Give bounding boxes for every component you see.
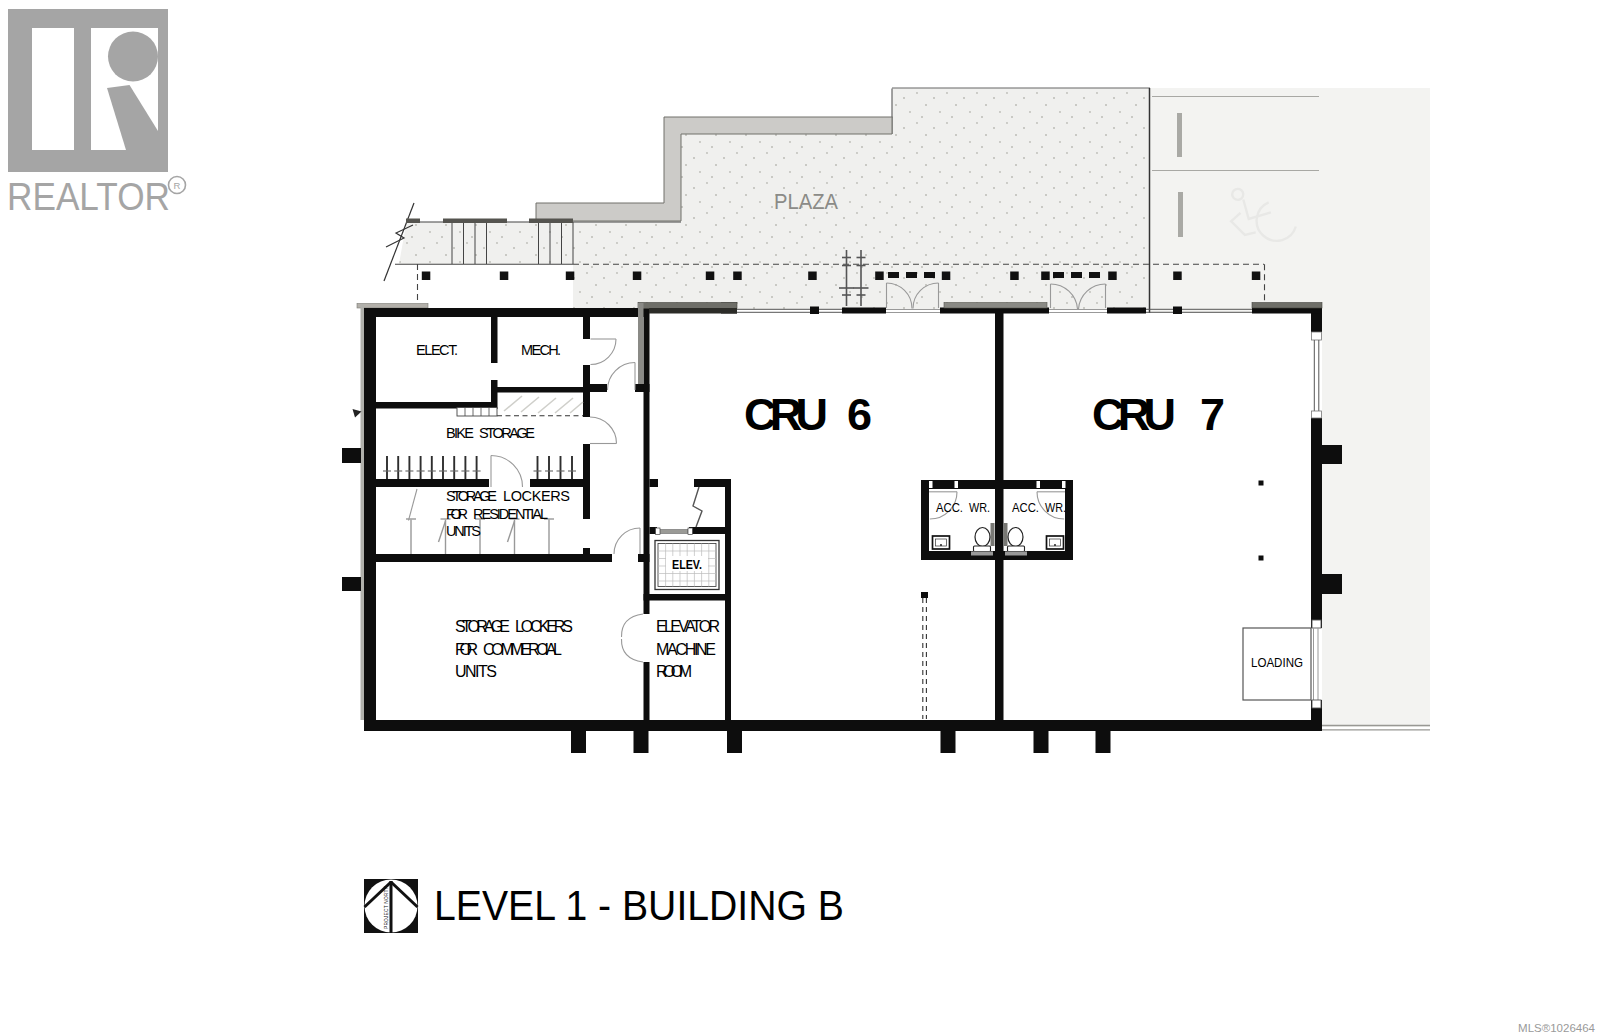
svg-text:BIKE: BIKE [446,425,474,441]
svg-text:MECH.: MECH. [521,342,561,358]
svg-text:LOCKERS: LOCKERS [503,488,570,504]
svg-text:R: R [174,180,181,191]
svg-text:UNITS: UNITS [446,523,481,539]
svg-text:LOCKERS: LOCKERS [515,618,573,635]
svg-text:STORAGE: STORAGE [446,488,497,504]
svg-text:LOADING: LOADING [1251,656,1303,670]
svg-text:7: 7 [1200,389,1225,440]
svg-text:CRU: CRU [1092,389,1176,440]
svg-text:STORAGE: STORAGE [455,618,510,635]
svg-text:FOR: FOR [455,641,478,658]
svg-text:PROJECT NORTH: PROJECT NORTH [384,885,389,929]
svg-text:ACC.: ACC. [1012,500,1039,515]
svg-text:UNITS: UNITS [455,663,497,680]
svg-text:LEVEL 1 - BUILDING B: LEVEL 1 - BUILDING B [434,882,844,929]
svg-text:FOR: FOR [446,506,468,522]
svg-text:ELECT.: ELECT. [416,342,458,358]
svg-text:COMMERCIAL: COMMERCIAL [483,641,562,658]
svg-text:WR.: WR. [1045,500,1066,515]
svg-text:ACC.: ACC. [936,500,963,515]
svg-text:CRU: CRU [744,389,828,440]
svg-text:ELEV.: ELEV. [672,558,702,572]
svg-text:MACHINE: MACHINE [656,641,716,658]
svg-text:ROOM: ROOM [656,663,692,680]
svg-text:WR.: WR. [969,500,990,515]
svg-text:STORAGE: STORAGE [479,425,535,441]
svg-text:ELEVATOR: ELEVATOR [656,618,720,635]
svg-text:REALTOR: REALTOR [7,174,170,218]
svg-text:MLS®1026464: MLS®1026464 [1518,1022,1595,1034]
svg-text:6: 6 [847,389,872,440]
svg-text:RESIDENTIAL: RESIDENTIAL [473,506,548,522]
svg-text:PLAZA: PLAZA [774,189,838,214]
